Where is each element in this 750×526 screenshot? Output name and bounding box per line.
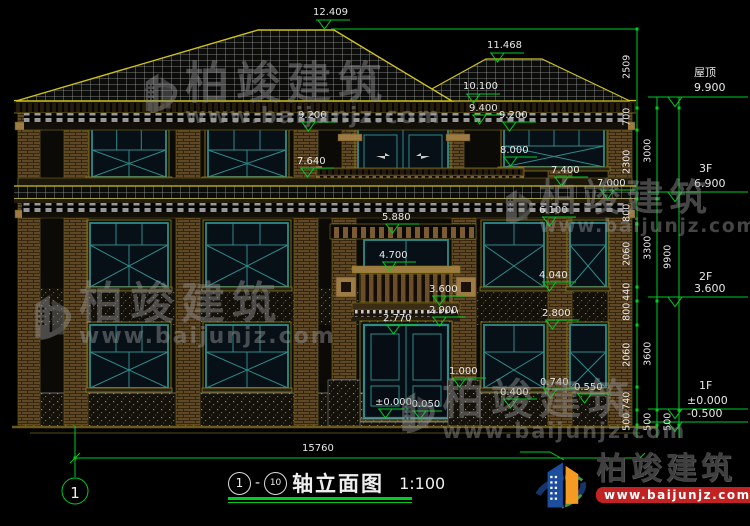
drawing-title: 1 - 10 轴立面图 1:100 (228, 468, 445, 498)
floor-level-2f: 3.600 (694, 283, 726, 294)
level-label-sill-2f: 4.040 (539, 271, 568, 281)
brand-logo-text: 柏竣建筑 (596, 452, 750, 486)
level-label-plinth-right: 0.550 (574, 383, 603, 393)
drawing-scale: 1:100 (399, 474, 445, 493)
axis-start-bubble: 1 (228, 472, 251, 495)
axis-end-bubble: 10 (264, 472, 287, 495)
title-underline-thin (228, 502, 412, 503)
level-label-door-top: 2.770 (383, 314, 412, 324)
level-label-win-top-3f: 8.000 (500, 146, 529, 156)
level-label-floor-2f: 3.600 (429, 285, 458, 295)
floor-level-1f: ±0.000 (687, 395, 728, 406)
level-label-sill-1f: 0.740 (540, 378, 569, 388)
level-label-ridge-main: 12.409 (313, 8, 348, 18)
dim-500a: 500 (622, 400, 632, 444)
level-label-soffit-right: 9.200 (499, 111, 528, 121)
level-label-win-top-2f: 6.100 (539, 206, 568, 216)
level-label-canopy: 4.700 (379, 251, 408, 261)
dim-9900: 9900 (663, 235, 673, 279)
dim-500b: 500 (643, 400, 653, 444)
elevation-drawing (0, 0, 750, 526)
level-label-band-2f: 5.880 (382, 213, 411, 223)
level-label-eave-bottom: 9.400 (469, 104, 498, 114)
floor-level-3f: 6.900 (694, 178, 726, 189)
floor-level-basement: -0.500 (687, 408, 722, 419)
level-label-eave-top: 10.100 (463, 82, 498, 92)
floor-level-roof: 9.900 (694, 82, 726, 93)
brand-logo: 柏竣建筑 www.baijunjz.com (534, 452, 750, 516)
cad-elevation-sheet: 12.409 11.468 10.100 9.400 9.200 9.200 8… (0, 0, 750, 526)
floor-label-2f: 2F (699, 271, 712, 282)
dim-800a: 800 (622, 191, 632, 235)
dim-2509: 2509 (622, 45, 632, 89)
level-label-skirt-top: 7.400 (551, 166, 580, 176)
dim-3000: 3000 (643, 129, 653, 173)
drawing-name: 轴立面图 (292, 468, 384, 498)
dim-800b: 800 (622, 290, 632, 334)
dimension-ticks (636, 28, 681, 427)
level-label-zero: ±0.000 (375, 398, 412, 408)
floor-label-roof: 屋顶 (694, 67, 716, 78)
level-label-entry-step: -0.050 (408, 400, 440, 410)
level-label-plinth-ledge: 0.400 (500, 388, 529, 398)
floor-label-1f: 1F (699, 380, 712, 391)
roof (16, 30, 630, 101)
dim-500c: 500 (663, 400, 673, 444)
dim-3300: 3300 (643, 226, 653, 270)
ground-line (12, 427, 658, 433)
total-width-dim: 15760 (302, 444, 334, 454)
floor-label-3f: 3F (699, 163, 712, 174)
brand-logo-icon (534, 452, 590, 516)
title-underline (228, 497, 412, 500)
level-label-win-top-1f: 2.800 (542, 309, 571, 319)
dim-3600: 3600 (643, 332, 653, 376)
axis-range-dash: - (255, 475, 260, 491)
axis-bubble-number: 1 (68, 484, 82, 502)
level-label-porch-base: 1.000 (449, 367, 478, 377)
dim-700: 700 (622, 95, 632, 139)
level-label-soffit-left: 9.200 (298, 111, 327, 121)
brand-logo-url: www.baijunjz.com (596, 487, 750, 503)
level-label-door-trim: 2.900 (429, 306, 458, 316)
level-label-rail-3f: 7.640 (297, 157, 326, 167)
level-label-ridge-2nd: 11.468 (487, 41, 522, 51)
dim-2060b: 2060 (622, 333, 632, 377)
dim-2300: 2300 (622, 140, 632, 184)
